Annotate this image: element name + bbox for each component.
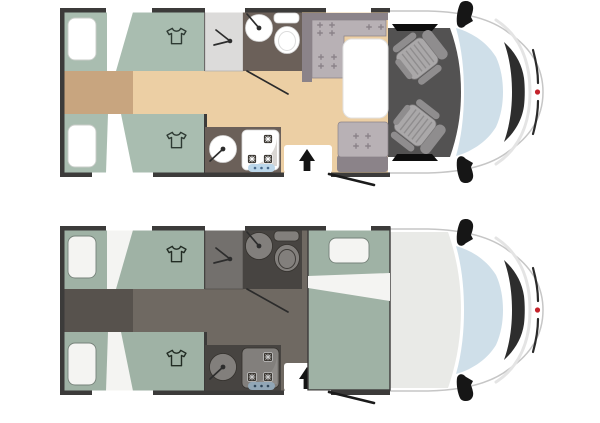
door-sill-top	[392, 24, 438, 31]
washbasin	[246, 14, 273, 42]
bathroom	[243, 12, 302, 71]
floorplan-canvas	[0, 0, 600, 402]
window-opening	[205, 226, 245, 231]
window-opening	[326, 8, 371, 13]
front-bench-backrest	[337, 155, 388, 172]
floorplan-night	[0, 218, 600, 423]
toilet	[274, 13, 300, 54]
kitchen-sink	[210, 354, 237, 381]
rear-bed-lower	[62, 114, 207, 173]
window-opening	[205, 8, 245, 13]
shower-cubicle	[205, 12, 243, 71]
rear-floor-step	[62, 71, 133, 114]
kitchen-block	[205, 345, 281, 391]
burner-icon	[248, 155, 257, 164]
cab-interior-shade	[389, 232, 461, 388]
entry-door	[284, 145, 332, 173]
floorplan-day	[0, 0, 600, 205]
rear-wall	[60, 226, 65, 395]
rear-bed-upper	[62, 12, 207, 71]
shower-cubicle	[205, 230, 243, 289]
window-opening	[92, 391, 153, 396]
shower-tray	[205, 12, 243, 71]
window-opening	[106, 8, 152, 13]
window-opening	[326, 226, 371, 231]
living-area-night	[62, 227, 390, 391]
living-area-day	[62, 12, 388, 173]
control-panel-strip	[248, 164, 275, 172]
kitchen-sink	[210, 136, 237, 163]
kitchen-block	[205, 127, 281, 173]
window-opening	[106, 226, 152, 231]
converted-front-bed	[308, 227, 390, 390]
pillow	[68, 18, 96, 60]
burner-icon	[248, 373, 257, 382]
pillow	[329, 238, 369, 263]
rear-bed-lower	[62, 332, 207, 391]
burner-icon	[264, 155, 273, 164]
washbasin	[246, 232, 273, 260]
bathroom	[243, 230, 302, 289]
entry-door-opening	[284, 173, 331, 178]
door-sill-bottom	[392, 154, 438, 161]
rear-wall	[60, 8, 65, 177]
burner-icon	[264, 353, 273, 362]
rear-floor-step	[62, 289, 133, 332]
front-bench-cushion	[338, 122, 388, 157]
shower-tray	[205, 230, 243, 289]
rear-bed-upper	[62, 230, 207, 289]
control-panel-strip	[248, 382, 275, 390]
window-opening	[92, 173, 153, 178]
pillow	[68, 125, 96, 167]
burner-icon	[264, 135, 273, 144]
pillow	[68, 343, 96, 385]
burner-icon	[264, 373, 273, 382]
entry-door-opening	[284, 391, 331, 396]
dinette-table	[343, 39, 388, 118]
pillow	[68, 236, 96, 278]
toilet	[274, 231, 300, 272]
